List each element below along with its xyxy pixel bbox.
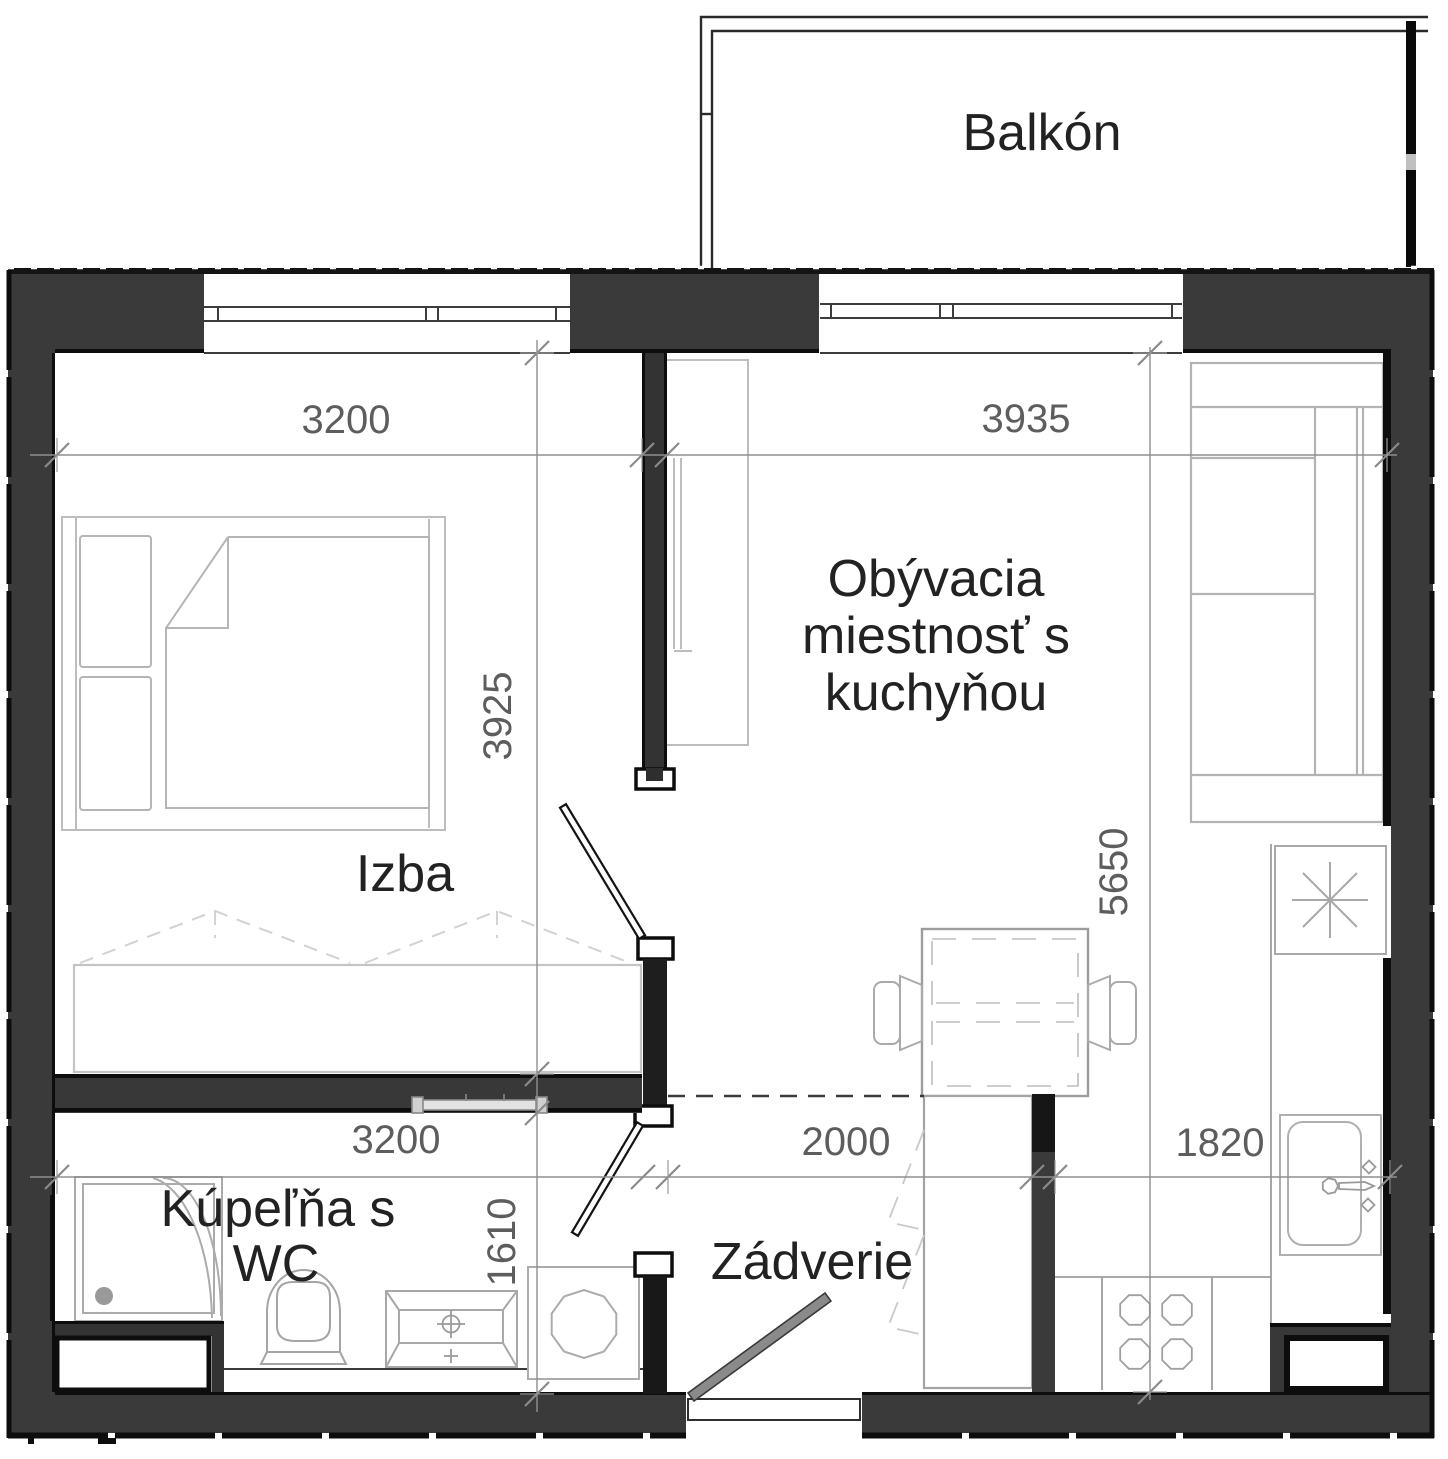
svg-text:1820: 1820 <box>1176 1121 1265 1165</box>
svg-text:Obývacia: Obývacia <box>828 550 1045 608</box>
svg-text:Izba: Izba <box>356 845 454 903</box>
svg-text:3200: 3200 <box>352 1118 441 1162</box>
svg-text:kuchyňou: kuchyňou <box>825 664 1048 722</box>
svg-text:2000: 2000 <box>802 1120 891 1164</box>
svg-text:Zádverie: Zádverie <box>711 1233 913 1291</box>
svg-text:Kúpeľňa s: Kúpeľňa s <box>161 1180 396 1238</box>
svg-text:Balkón: Balkón <box>963 104 1122 162</box>
svg-text:3925: 3925 <box>476 672 520 761</box>
svg-text:WC: WC <box>233 1235 320 1293</box>
svg-text:3935: 3935 <box>982 397 1071 441</box>
svg-text:3200: 3200 <box>302 398 391 442</box>
svg-text:miestnosť s: miestnosť s <box>802 607 1070 665</box>
svg-text:5650: 5650 <box>1092 828 1136 917</box>
svg-text:1610: 1610 <box>480 1198 524 1287</box>
